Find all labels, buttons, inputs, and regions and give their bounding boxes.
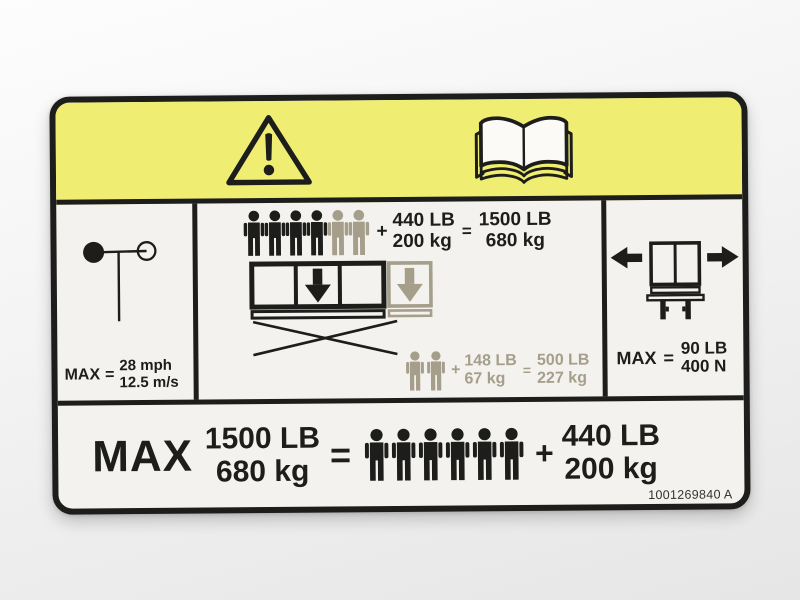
person-icon [423,351,448,391]
occupants-group [243,209,369,256]
extension-extra-lb: 148 LB [464,352,517,370]
main-deck-down-arrow-icon [305,269,331,303]
total-extra-kg: 200 kg [564,452,658,485]
middle-panels-row: MAX = 28 mph 12.5 m/s + 440 LB 200 kg = … [56,199,744,400]
right-arrow-icon [707,246,739,268]
wind-max-label: MAX [64,366,100,384]
total-load-values: 1500 LB 680 kg [205,423,321,489]
side-force-equals-sign: = [663,348,674,369]
person-icon [344,209,373,255]
anemometer-icon [81,240,160,325]
scissor-lift-platform-icon [249,260,442,362]
side-force-max-equation: MAX = 90 LB 400 N [616,339,727,377]
main-capacity-equation: + 440 LB 200 kg = 1500 LB 680 kg [243,208,552,256]
side-force-lb: 90 LB [681,339,727,358]
extension-total-values: 500 LB 227 kg [537,352,590,388]
total-extra-lb: 440 LB [562,420,661,453]
total-capacity-row: MAX 1500 LB 680 kg = + 440 LB 200 kg 100… [58,395,745,508]
platform-capacity-panel: + 440 LB 200 kg = 1500 LB 680 kg [197,200,608,399]
horizontal-force-arrows-icon [611,239,740,332]
side-force-max-label: MAX [616,348,656,369]
extension-extra-kg: 67 kg [464,370,505,388]
extension-total-kg: 227 kg [537,370,587,388]
extension-deck-down-arrow-icon [397,268,423,302]
open-manual-book-icon [467,107,580,188]
wind-speed-values: 28 mph 12.5 m/s [119,358,178,391]
total-max-label: MAX [92,431,193,482]
plus-sign: + [451,362,460,380]
extension-total-lb: 500 LB [537,352,590,370]
warning-triangle-icon [223,109,314,190]
total-load-values: 1500 LB 680 kg [479,210,552,252]
extension-occupants-group [404,351,446,391]
scissor-lift-capacity-label: MAX = 28 mph 12.5 m/s + 440 LB 200 kg = … [49,91,750,514]
equals-sign: = [462,221,472,241]
plus-sign: + [535,435,554,472]
warning-header-band [55,97,742,204]
wind-equals-sign: = [105,366,114,384]
total-extra-load-values: 440 LB 200 kg [562,420,661,486]
side-force-n: 400 N [681,358,727,377]
wind-speed-ms: 12.5 m/s [119,374,178,391]
side-force-panel: MAX = 90 LB 400 N [606,199,744,396]
left-arrow-icon [611,247,643,269]
extra-load-kg: 200 kg [393,232,452,253]
side-force-values: 90 LB 400 N [681,339,728,377]
extra-load-lb: 440 LB [392,211,454,232]
wind-max-equation: MAX = 28 mph 12.5 m/s [64,358,178,392]
platform-cage-icon [647,243,704,320]
part-number: 1001269840 A [648,487,732,502]
wind-speed-panel: MAX = 28 mph 12.5 m/s [56,204,199,401]
extension-capacity-equation: + 148 LB 67 kg = 500 LB 227 kg [404,350,590,391]
plus-sign: + [376,221,387,243]
equals-sign: = [523,362,531,378]
total-load-kg: 680 kg [486,231,545,252]
total-load-kg: 680 kg [216,455,310,488]
total-load-lb: 1500 LB [205,423,320,456]
wind-speed-mph: 28 mph [119,358,172,375]
equals-sign: = [330,434,351,476]
total-occupants-group [363,427,525,481]
extra-load-values: 440 LB 200 kg [392,211,455,253]
extension-extra-load-values: 148 LB 67 kg [464,352,517,388]
total-load-lb: 1500 LB [479,210,552,231]
person-icon [495,427,528,480]
